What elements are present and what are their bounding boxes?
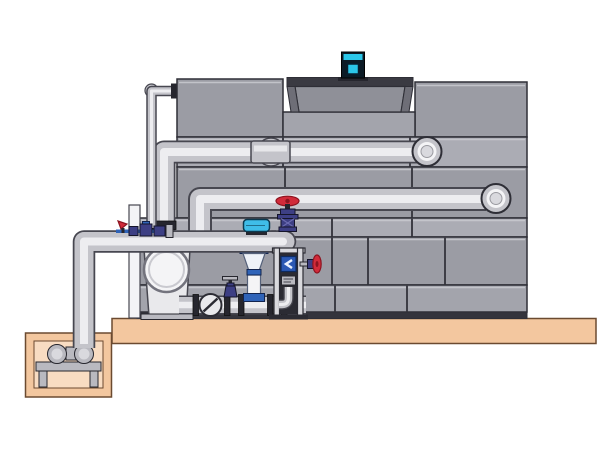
sump-pump-motor-face: [52, 349, 63, 360]
flow-meter: [281, 257, 296, 272]
pipe-elbow-cap-center: [490, 193, 502, 205]
meter-label-plate: [282, 276, 296, 285]
frame-post-left: [274, 248, 280, 317]
valve-bottom-flange: [279, 227, 297, 232]
tower-upper-right-panel: [415, 82, 527, 137]
wall-connection-flange: [171, 84, 177, 99]
concrete-platform: [112, 319, 596, 344]
stand-leg-right: [90, 371, 98, 387]
sump-pump-volute-face: [79, 349, 90, 360]
diffuser-bottom-flange: [244, 294, 265, 302]
basin-left-wall-edge: [129, 205, 140, 318]
fan-deck-panel: [283, 112, 415, 137]
frame-base: [269, 315, 308, 320]
diffuser-band: [247, 270, 261, 276]
motor-face-plate: [348, 64, 359, 74]
coupling-highlight: [254, 146, 287, 152]
sump-pump-stand: [36, 362, 101, 371]
pump-base-foot: [141, 314, 193, 320]
tower-upper-left-panel: [177, 79, 283, 137]
tower-fan-cowl: [287, 78, 413, 113]
pipe-coupling: [251, 141, 290, 163]
cluster-valve-small: [129, 227, 138, 236]
pipe-support-frame: [269, 248, 308, 320]
control-valve: [244, 220, 270, 236]
pipe-flange: [193, 295, 199, 316]
pipe-flange: [268, 295, 274, 316]
gate-valve-handle: [223, 277, 238, 281]
pump-suction-inlet: [144, 247, 189, 292]
cluster-valve-body: [154, 226, 165, 236]
cowl-front-face: [295, 87, 405, 113]
pipe-flange: [225, 295, 231, 316]
fan-motor: [338, 52, 368, 81]
cluster-flange: [166, 225, 173, 238]
equipment-drawing: [0, 0, 600, 450]
cluster-valve-large: [140, 224, 152, 236]
handwheel-hub: [285, 199, 289, 203]
drain-valve-stem: [122, 228, 125, 233]
side-valve-hub: [316, 261, 319, 267]
stand-leg-left: [39, 371, 47, 387]
pipe-elbow-cap-center: [421, 146, 433, 158]
frame-post-right: [298, 248, 304, 317]
cooling-tower-illustration: [0, 0, 600, 450]
sump-pit: [26, 333, 112, 397]
motor-top-band: [344, 54, 363, 60]
gate-valve-body: [224, 286, 237, 297]
